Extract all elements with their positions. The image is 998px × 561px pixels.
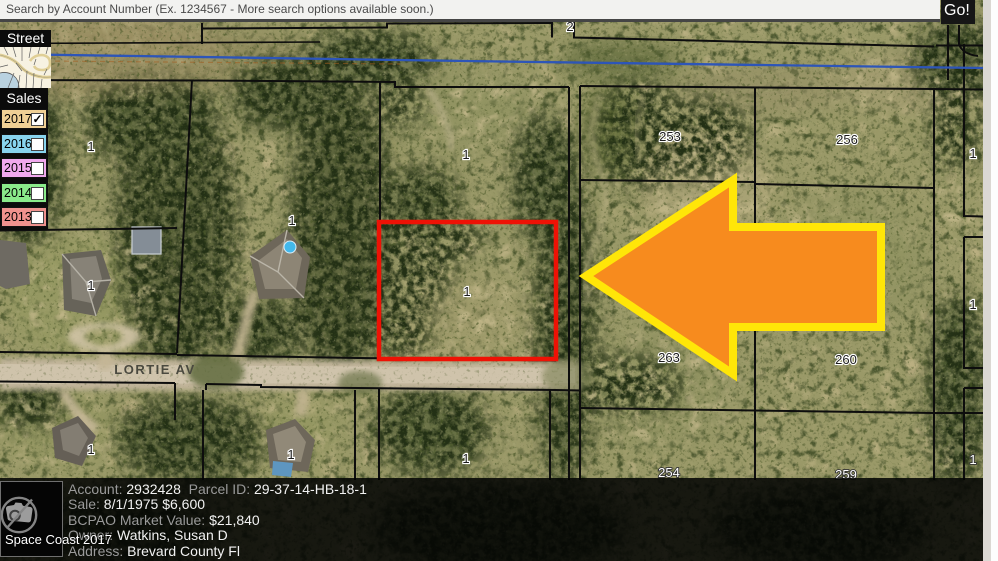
svg-text:263: 263	[658, 350, 680, 365]
svg-text:1: 1	[462, 451, 469, 466]
svg-text:1: 1	[969, 146, 976, 161]
svg-text:1: 1	[463, 284, 470, 299]
svg-text:1: 1	[969, 452, 976, 467]
svg-text:1: 1	[87, 442, 94, 457]
svg-text:1: 1	[969, 297, 976, 312]
svg-text:260: 260	[835, 352, 857, 367]
svg-text:253: 253	[659, 129, 681, 144]
svg-text:LORTIE AV: LORTIE AV	[114, 362, 195, 377]
svg-text:1: 1	[462, 147, 469, 162]
svg-text:1: 1	[288, 213, 295, 228]
svg-text:1: 1	[287, 447, 294, 462]
svg-text:256: 256	[836, 132, 858, 147]
svg-text:1: 1	[87, 278, 94, 293]
svg-text:1: 1	[87, 139, 94, 154]
